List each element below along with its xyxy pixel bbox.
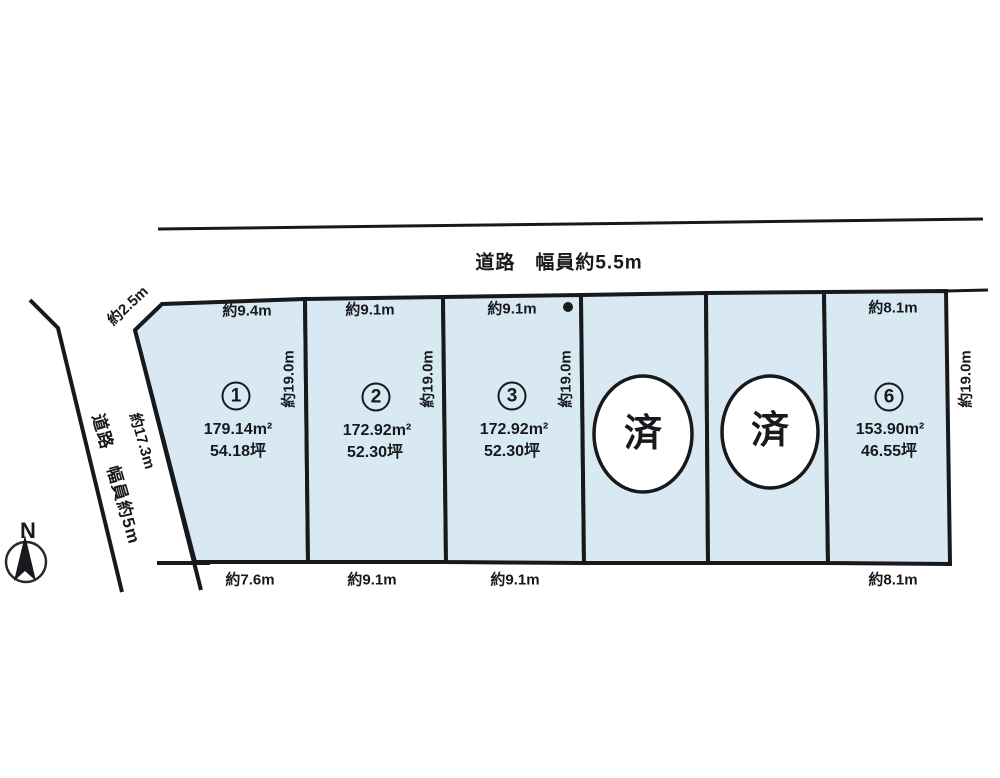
plot-3-top-measure: 約9.1m — [487, 302, 536, 317]
land-plot-diagram: 道路 幅員約5.5m 道路 幅員約5m 約17.3m 約2.5m 約9.4m 約… — [0, 0, 1000, 778]
plot-1-side-measure: 約19.0m — [282, 350, 297, 408]
road-top-line — [158, 219, 983, 229]
plot-1-bottom-measure: 約7.6m — [225, 573, 274, 588]
plot-3-area-m2: 172.92m² — [480, 422, 549, 438]
compass-north-label: N — [20, 520, 36, 542]
plot-3-area-tsubo: 52.30坪 — [484, 444, 540, 460]
plot-1-number-badge: 1 — [222, 382, 251, 411]
plot-6-area-m2: 153.90m² — [856, 422, 925, 438]
plot-6-side-measure: 約19.0m — [959, 350, 974, 408]
plot-6-top-measure: 約8.1m — [868, 301, 917, 316]
plot-2-side-measure: 約19.0m — [421, 350, 436, 408]
plot-2-area-m2: 172.92m² — [343, 423, 412, 439]
plot-5-sold-label: 済 — [751, 412, 789, 450]
plot-1-area-m2: 179.14m² — [204, 422, 273, 438]
plot-2-top-measure: 約9.1m — [345, 303, 394, 318]
plot-2-area-tsubo: 52.30坪 — [347, 445, 403, 461]
road-bottom-line-extension — [946, 290, 988, 291]
plot-6-number-badge: 6 — [875, 383, 904, 412]
plot-2-bottom-measure: 約9.1m — [347, 573, 396, 588]
plot-2-number-badge: 2 — [362, 383, 391, 412]
plot-3-bottom-measure: 約9.1m — [490, 573, 539, 588]
road-top-label: 道路 幅員約5.5m — [475, 254, 642, 273]
plot-6-bottom-measure: 約8.1m — [868, 573, 917, 588]
plot-3-side-measure: 約19.0m — [559, 350, 574, 408]
plot-3-number-badge: 3 — [498, 382, 527, 411]
plot-1-area-tsubo: 54.18坪 — [210, 444, 266, 460]
plot-1-top-measure: 約9.4m — [222, 304, 271, 319]
boundary-dot-marker — [563, 302, 573, 312]
plot-6-area-tsubo: 46.55坪 — [861, 444, 917, 460]
plot-4-sold-label: 済 — [624, 415, 662, 453]
